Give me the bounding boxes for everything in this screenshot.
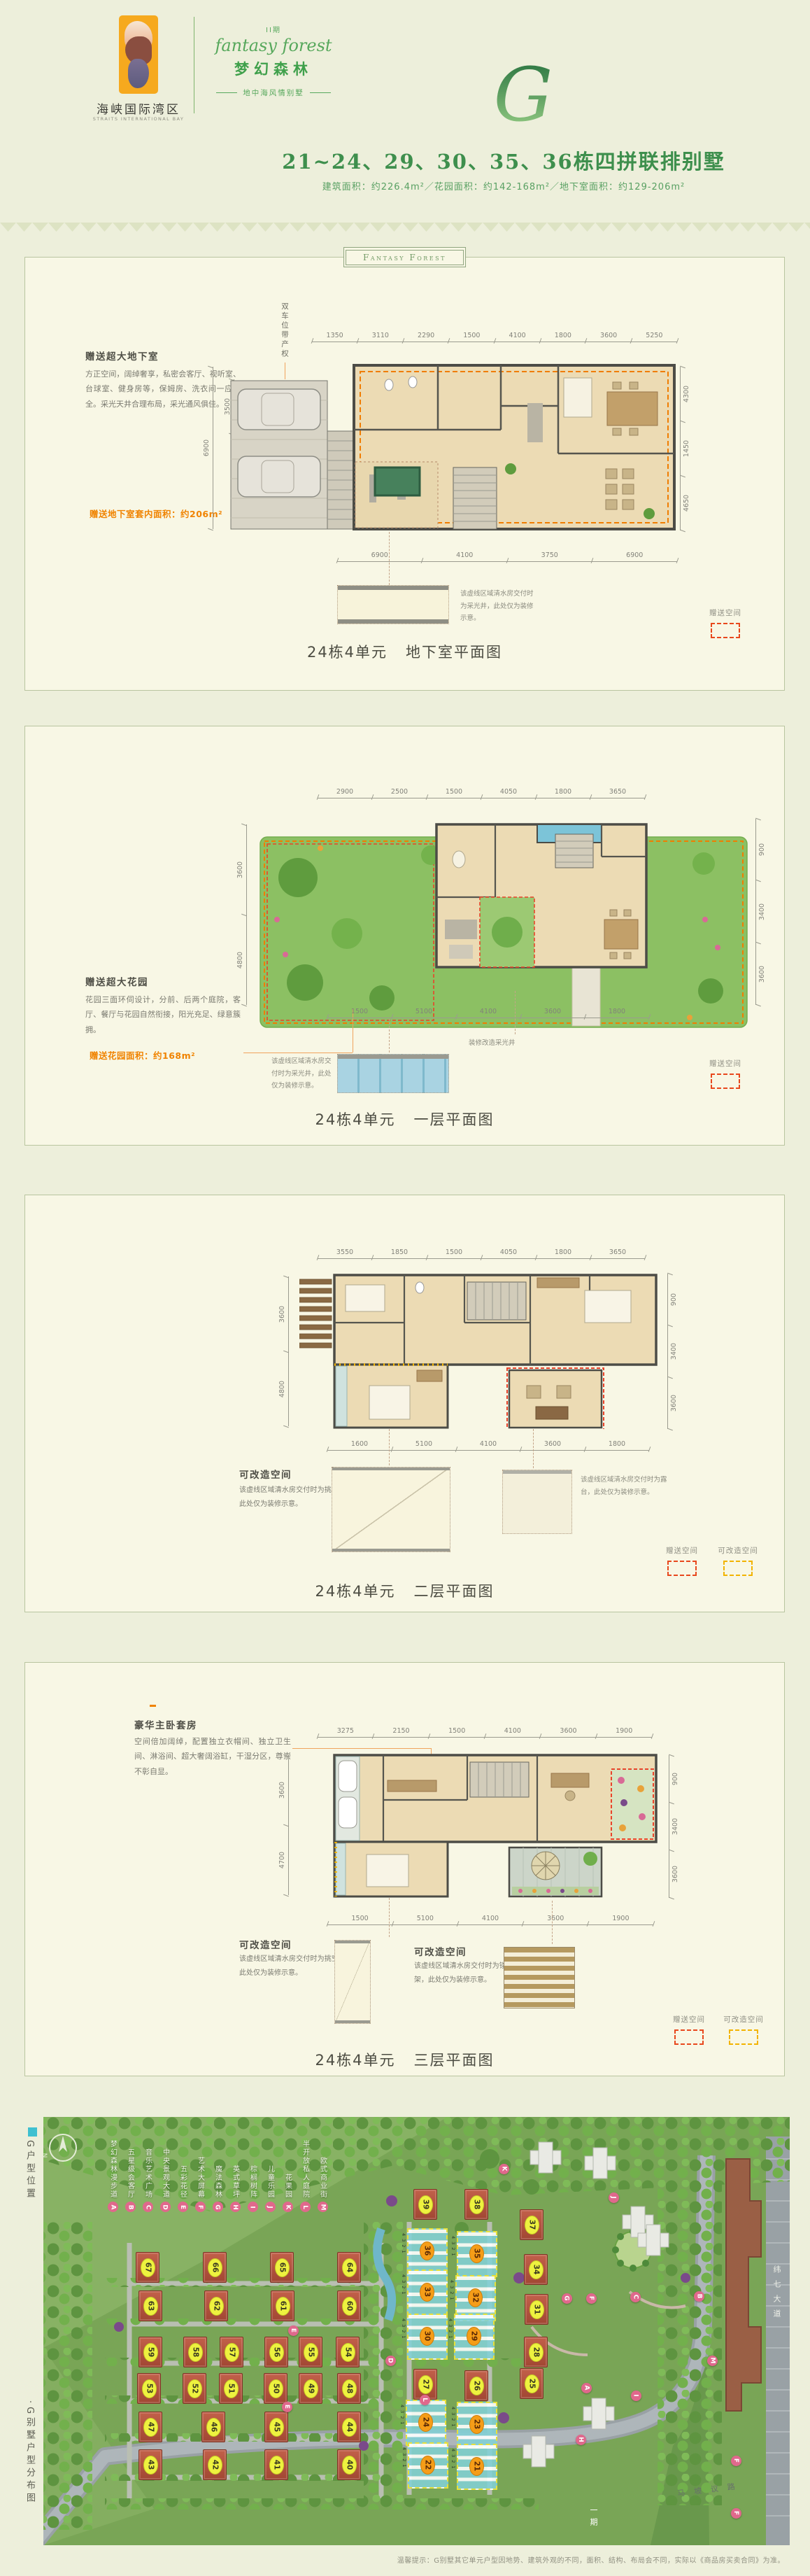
amenity-letter-badge: E <box>288 2325 299 2336</box>
leader-line <box>243 1053 353 1053</box>
amenity-letter-badge: H <box>576 2435 586 2445</box>
villa-number-badge: 49 <box>304 2379 318 2398</box>
brand-script: fantasy forest <box>208 36 339 55</box>
villa-number-badge: 53 <box>142 2379 157 2398</box>
modifiable-heading: 可改造空间 <box>239 1467 292 1481</box>
legend-item: 英式草坪H <box>227 2127 243 2212</box>
modifiable-body: 该虚线区域清水房交付时为挑空，此处仅为装修示意。 <box>239 1484 346 1511</box>
logo-name-cn: 海峡国际湾区 <box>90 99 187 117</box>
modifiable-body-1: 该虚线区域清水房交付时为挑空，此处仅为装修示意。 <box>239 1952 346 1980</box>
gtype-number-badge: 24 <box>418 2413 433 2432</box>
panel-caption: 24栋4单元三层平面图 <box>25 2049 784 2070</box>
amenity-letter-badge: K <box>499 2164 509 2174</box>
fantasy-forest-badge: Fantasy Forest <box>343 247 467 267</box>
gtype-number-badge: 23 <box>469 2415 484 2434</box>
panel-floor2: 355018501500405018003650 36004800 900340… <box>24 1195 785 1612</box>
gtype-number-badge: 33 <box>420 2283 434 2302</box>
dim-col-left: 36004800 <box>277 1276 289 1426</box>
villa-number-badge: 59 <box>143 2343 158 2362</box>
leader-dashed <box>552 1901 553 1944</box>
villa-number-badge: 56 <box>269 2343 284 2362</box>
garage-side-label: 双车位带产权 <box>280 302 290 359</box>
villa-number-badge: 55 <box>304 2343 318 2362</box>
gtype-number-badge: 30 <box>420 2327 434 2346</box>
villa-number-badge: 46 <box>206 2418 221 2437</box>
lightwell-glass-detail <box>337 1054 449 1093</box>
villa-number-badge: 51 <box>224 2379 239 2398</box>
villa-number-badge: 25 <box>525 2374 539 2393</box>
brand-phase: II期 <box>208 24 339 34</box>
master-siteplan: N 梦幻森林漫步道A 五星级会客厅B 音乐艺术广场C 中央景观大道D 五彩花径E… <box>0 2117 810 2545</box>
amenity-letter-badge: E <box>282 2402 292 2412</box>
garden-note-heading: 赠送超大花园 <box>85 974 148 988</box>
basement-floorplan <box>229 364 677 530</box>
legend-chip: 可改造空间 <box>719 2014 768 2045</box>
gtype-number-badge: 32 <box>468 2288 483 2307</box>
dim-row-top: 355018501500405018003650 <box>318 1247 645 1259</box>
leader-dashed <box>389 1429 390 1465</box>
master-suite-body: 空间倍加阔绰，配置独立衣帽间、独立卫生间、淋浴间、超大奢阔浴缸，干湿分区，尊崇不… <box>134 1734 291 1779</box>
dim-col-right: 90034003600 <box>755 819 767 1005</box>
villa-number-badge: 39 <box>418 2195 433 2214</box>
villa-number-badge: 42 <box>208 2456 222 2475</box>
basement-note-heading: 赠送超大地下室 <box>85 349 159 363</box>
villa-number-badge: 60 <box>342 2297 357 2316</box>
dim-row-top: 13503110229015004100180036005250 <box>312 330 677 342</box>
dim-col-left: 36004700 <box>277 1755 289 1895</box>
legend-item: 儿童乐园J <box>262 2127 278 2212</box>
floor3-floorplan <box>299 1752 663 1898</box>
brand-tagline: 地中海风情别墅 <box>243 87 304 98</box>
legend-item: 中央景观大道D <box>157 2127 173 2212</box>
wood-trellis-detail <box>504 1947 575 2008</box>
amenity-letter-badge: F <box>731 2508 741 2519</box>
villa-number-badge: 31 <box>530 2300 544 2319</box>
amenity-letter-badge: J <box>609 2193 619 2203</box>
gtype-number-badge: 21 <box>469 2457 484 2476</box>
page-title: 21~24、29、30、35、36栋四拼联排别墅 <box>210 146 797 175</box>
leader-dashed <box>389 532 390 585</box>
panel-caption: 24栋4单元二层平面图 <box>25 1580 784 1601</box>
villa-number-badge: 34 <box>529 2260 543 2279</box>
villa-number-badge: 37 <box>525 2216 539 2234</box>
villa-number-badge: 41 <box>269 2456 284 2475</box>
panel-caption: 24栋4单元一层平面图 <box>25 1108 784 1129</box>
floor2-floorplan <box>299 1272 663 1429</box>
villa-number-badge: 40 <box>342 2456 357 2475</box>
amenity-letter-badge: I <box>631 2391 641 2401</box>
legend-item: 欧式商业街M <box>315 2127 330 2212</box>
villa-number-badge: 57 <box>225 2343 239 2362</box>
dim-col-left: 36004800 <box>235 824 247 1005</box>
gtype-number-badge: 35 <box>469 2244 484 2263</box>
amenity-letter-badge: B <box>694 2291 704 2302</box>
gtype-number-badge: 22 <box>420 2456 435 2475</box>
villa-number-badge: 54 <box>341 2343 355 2362</box>
disclaimer: 温馨提示：G别墅其它单元户型因地势、建筑外观的不同，面积、结构、布局会不同，实际… <box>0 2554 785 2565</box>
dim-row-bottom: 15005100410036001900 <box>327 1913 653 1925</box>
leader-dashed <box>389 1019 390 1053</box>
villa-number-badge: 61 <box>276 2297 290 2316</box>
dim-row-top: 327521501500410036001900 <box>318 1726 652 1738</box>
legend-chip: 赠送空间 <box>665 2014 713 2045</box>
amenity-letter-badge: F <box>586 2293 597 2304</box>
logo-name-en: STRAITS INTERNATIONAL BAY <box>90 116 187 122</box>
legend-item: 音乐艺术广场C <box>140 2127 155 2212</box>
legend-chip: 赠送空间 <box>701 607 750 638</box>
terrace-detail <box>502 1470 572 1534</box>
brand-name: 梦幻森林 <box>208 58 339 79</box>
amenity-letter-badge: G <box>562 2293 572 2304</box>
amenity-letter-badge: A <box>581 2383 592 2393</box>
tagline-rule-left <box>216 92 237 93</box>
scallop-border <box>0 223 810 234</box>
panel-floor3: 豪华主卧套房 空间倍加阔绰，配置独立衣帽间、独立卫生间、淋浴间、超大奢阔浴缸，干… <box>24 1662 785 2076</box>
page-subtitle: 建筑面积：约226.4m²／花园面积：约142-168m²／地下室面积：约129… <box>210 179 797 192</box>
void-detail <box>334 1940 371 2024</box>
dim-col-right: 90034003600 <box>669 1755 681 1898</box>
dim-row-top: 290025001500405018003650 <box>318 787 645 798</box>
leader-dashed <box>515 991 516 1034</box>
dim-row-bottom: 6900410037506900 <box>337 550 677 562</box>
compass-north-label: N <box>42 2153 49 2158</box>
villa-number-badge: 38 <box>469 2195 484 2214</box>
brand-block: II期 fantasy forest 梦幻森林 地中海风情别墅 <box>208 24 339 98</box>
villa-number-badge: 26 <box>469 2377 484 2395</box>
villa-number-badge: 43 <box>143 2456 158 2475</box>
amenity-letter-badge: M <box>707 2356 718 2366</box>
legend-item: 五彩花径E <box>175 2127 190 2212</box>
villa-number-badge: 44 <box>342 2418 357 2437</box>
panel-floor1: 290025001500405018003650 36004800 900340… <box>24 726 785 1146</box>
modifiable-heading-1: 可改造空间 <box>239 1937 292 1951</box>
amenity-letter-badge: L <box>420 2395 430 2405</box>
gtype-number-badge: 36 <box>420 2241 434 2260</box>
villa-number-badge: 52 <box>187 2379 202 2398</box>
dim-col-right: 430014504650 <box>680 367 692 530</box>
logo-art-sea <box>128 59 149 88</box>
dim-row-bottom: 16005100410036001800 <box>327 1439 649 1451</box>
header-divider <box>194 17 194 113</box>
garden-area-label: 赠送花园面积：约168m² <box>90 1048 195 1062</box>
legend-chip: 赠送空间 <box>658 1545 706 1576</box>
amenity-letter-badge: C <box>630 2292 641 2302</box>
type-letter-g: G <box>481 53 565 137</box>
leader-line <box>292 1748 431 1749</box>
lightwell-remodel-label: 装修改造采光井 <box>469 1037 546 1050</box>
villa-number-badge: 67 <box>141 2258 155 2277</box>
basement-note-body: 方正空间，阔绰奢享，私密会客厅、视听室、台球室、健身房等，保姆房、洗衣间一应俱全… <box>85 367 241 411</box>
panel-caption: 24栋4单元地下室平面图 <box>25 641 784 662</box>
amenity-letter-badge: F <box>731 2456 741 2466</box>
gtype-number-badge: 29 <box>467 2327 481 2346</box>
villa-number-badge: 48 <box>342 2379 357 2398</box>
dim-row-bottom: 15005100410036001800 <box>327 1006 649 1018</box>
legend-item: 魔法森林G <box>210 2127 225 2212</box>
phase1-label: 一期 <box>588 2506 599 2530</box>
tagline-rule-right <box>310 92 331 93</box>
svg-text:G: G <box>494 53 553 137</box>
leader-dashed <box>533 1429 534 1468</box>
dim-col-right: 90034003600 <box>667 1274 679 1429</box>
villa-number-badge: 47 <box>143 2418 158 2437</box>
villa-number-badge: 28 <box>529 2343 543 2362</box>
floor1-gardenplan <box>256 815 753 1033</box>
void-detail <box>332 1467 450 1552</box>
terrace-note: 该虚线区域清水房交付时为露台，此处仅为装修示意。 <box>581 1474 673 1498</box>
accent-tick <box>150 1705 156 1707</box>
villa-number-badge: 62 <box>209 2297 224 2316</box>
legend-item: 半开放私人庭院L <box>297 2127 313 2212</box>
villa-number-badge: 58 <box>188 2343 203 2362</box>
leader-dashed <box>389 1898 390 1937</box>
modifiable-heading-2: 可改造空间 <box>414 1944 467 1958</box>
legend-item: 花果园K <box>280 2127 295 2212</box>
villa-number-badge: 65 <box>275 2258 290 2277</box>
road-label-right: 纬七大道 <box>771 2265 782 2324</box>
panel-basement: Fantasy Forest 赠送超大地下室 方正空间，阔绰奢享，私密会客厅、视… <box>24 257 785 691</box>
villa-number-badge: 63 <box>143 2297 158 2316</box>
legend-item: 梦幻森林漫步道A <box>105 2127 120 2212</box>
lightwell-detail <box>337 585 449 624</box>
brochure-page: { "header": { "logo_cn": "海峡国际湾区", "logo… <box>0 0 810 2576</box>
lightwell-note: 该虚线区域清水房交付时为采光井，此处仅为装修示意。 <box>271 1055 333 1092</box>
villa-number-badge: 27 <box>418 2375 433 2394</box>
master-suite-heading: 豪华主卧套房 <box>134 1717 197 1731</box>
lightwell-note: 该虚线区域清水房交付时为采光井，此处仅为装修示意。 <box>460 588 539 625</box>
dim-col-left: 6900 <box>201 367 213 529</box>
amenity-letter-badge: D <box>385 2356 396 2366</box>
villa-number-badge: 66 <box>208 2258 222 2277</box>
garden-note-body: 花园三面环伺设计，分前、后两个庭院，客厅、餐厅与花园自然衔接，阳光充足、绿意簇拥… <box>85 992 241 1037</box>
logo <box>119 15 158 94</box>
legend-item: 五星级会客厅B <box>122 2127 138 2212</box>
legend-item: 棕榈树阵I <box>245 2127 260 2212</box>
legend-chip: 可改造空间 <box>713 1545 762 1576</box>
villa-number-badge: 45 <box>269 2418 284 2437</box>
legend-item: 艺术大屏幕F <box>192 2127 208 2212</box>
villa-number-badge: 50 <box>269 2379 283 2398</box>
villa-number-badge: 64 <box>342 2258 357 2277</box>
legend-chip: 赠送空间 <box>701 1058 750 1089</box>
